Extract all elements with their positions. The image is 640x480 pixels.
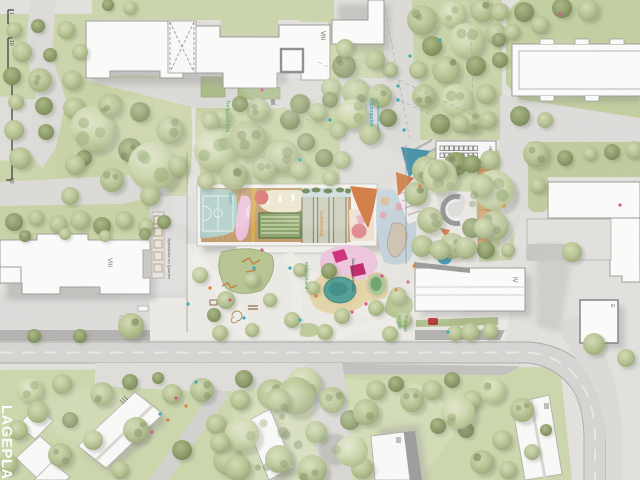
svg-text:LAGEPLAN: LAGEPLAN bbox=[0, 405, 14, 480]
